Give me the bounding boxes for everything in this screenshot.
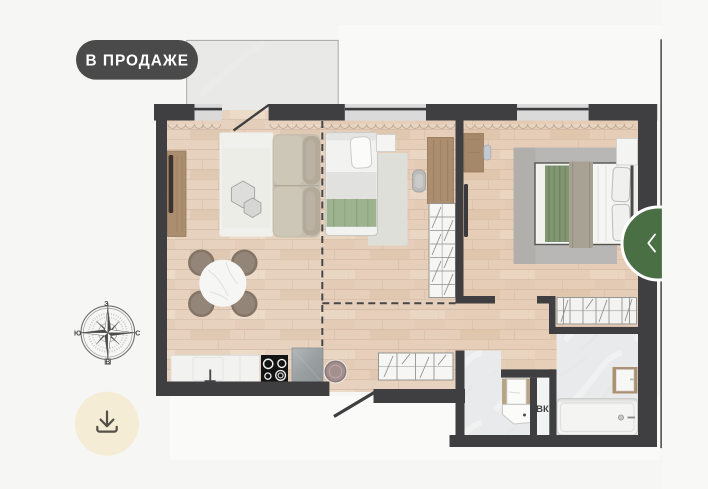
- svg-text:Ю: Ю: [74, 330, 81, 337]
- svg-text:С: С: [135, 330, 140, 337]
- svg-text:В: В: [105, 359, 110, 366]
- svg-text:В ПРОДАЖЕ: В ПРОДАЖЕ: [86, 53, 190, 70]
- svg-text:ВК: ВК: [536, 404, 549, 415]
- svg-text:З: З: [104, 301, 109, 308]
